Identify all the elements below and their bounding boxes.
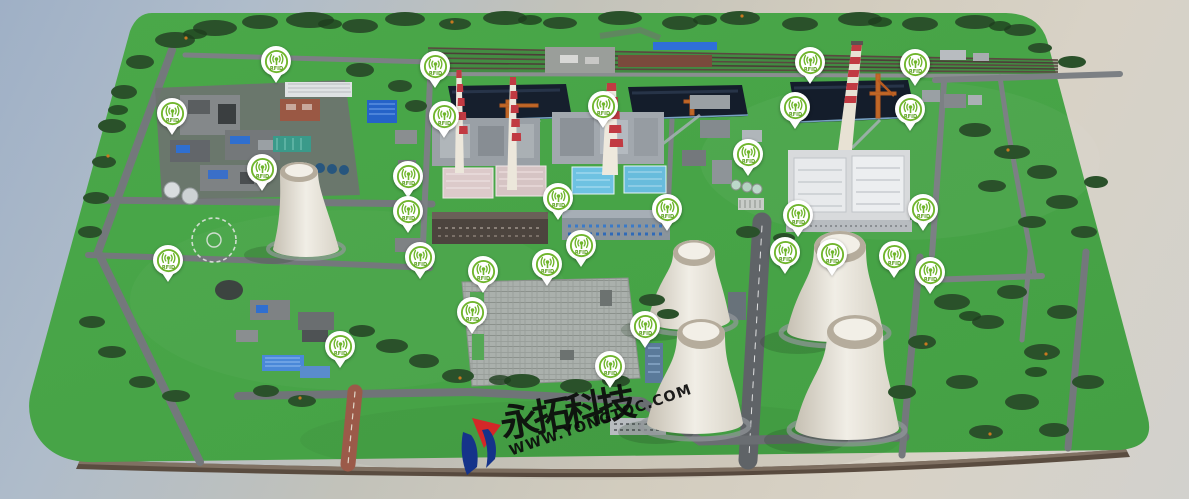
rfid-marker-label: RFID	[540, 269, 553, 275]
rfid-marker-label: RFID	[908, 69, 921, 75]
rfid-marker-tail	[334, 359, 346, 368]
rfid-marker-label: RFID	[476, 276, 489, 282]
rfid-signal-icon: RFID	[903, 52, 928, 77]
rfid-marker[interactable]: RFID	[393, 161, 423, 200]
rfid-marker-label: RFID	[788, 112, 801, 118]
rfid-marker-label: RFID	[916, 214, 929, 220]
rfid-marker-label: RFID	[465, 317, 478, 323]
rfid-marker[interactable]: RFID	[325, 331, 355, 370]
rfid-signal-icon: RFID	[328, 334, 353, 359]
rfid-marker-bubble: RFID	[532, 249, 562, 279]
rfid-signal-icon: RFID	[160, 101, 185, 126]
rfid-signal-icon: RFID	[546, 186, 571, 211]
rfid-marker[interactable]: RFID	[783, 200, 813, 239]
rfid-marker[interactable]: RFID	[261, 46, 291, 85]
rfid-marker-tail	[661, 222, 673, 231]
rfid-marker-bubble: RFID	[915, 257, 945, 287]
rfid-marker-tail	[162, 273, 174, 282]
rfid-signal-icon: RFID	[882, 244, 907, 269]
rfid-marker-tail	[826, 267, 838, 276]
rfid-marker-bubble: RFID	[261, 46, 291, 76]
rfid-marker-bubble: RFID	[457, 297, 487, 327]
rfid-marker[interactable]: RFID	[795, 47, 825, 86]
rfid-marker-tail	[414, 270, 426, 279]
rfid-signal-icon: RFID	[773, 240, 798, 265]
rfid-marker-bubble: RFID	[733, 139, 763, 169]
rfid-signal-icon: RFID	[432, 104, 457, 129]
rfid-marker-label: RFID	[551, 203, 564, 209]
rfid-marker-tail	[477, 284, 489, 293]
rfid-marker-tail	[742, 167, 754, 176]
rfid-signal-icon: RFID	[783, 95, 808, 120]
rfid-marker-tail	[402, 224, 414, 233]
rfid-marker-bubble: RFID	[247, 154, 277, 184]
rfid-marker-tail	[256, 182, 268, 191]
rfid-marker-label: RFID	[413, 262, 426, 268]
rfid-marker[interactable]: RFID	[468, 256, 498, 295]
rfid-marker[interactable]: RFID	[900, 49, 930, 88]
rfid-marker-label: RFID	[401, 216, 414, 222]
rfid-marker-bubble: RFID	[543, 183, 573, 213]
rfid-marker[interactable]: RFID	[630, 311, 660, 350]
rfid-marker-bubble: RFID	[780, 92, 810, 122]
rfid-marker[interactable]: RFID	[733, 139, 763, 178]
rfid-marker-bubble: RFID	[895, 94, 925, 124]
rfid-marker[interactable]: RFID	[588, 91, 618, 130]
rfid-marker-label: RFID	[161, 265, 174, 271]
rfid-marker-tail	[639, 339, 651, 348]
rfid-marker[interactable]: RFID	[652, 194, 682, 233]
rfid-marker[interactable]: RFID	[895, 94, 925, 133]
rfid-signal-icon: RFID	[569, 233, 594, 258]
rfid-signal-icon: RFID	[156, 248, 181, 273]
rfid-marker-tail	[597, 119, 609, 128]
rfid-marker-bubble: RFID	[468, 256, 498, 286]
rfid-marker-tail	[792, 228, 804, 237]
rfid-marker[interactable]: RFID	[595, 351, 625, 390]
rfid-marker-label: RFID	[778, 257, 791, 263]
rfid-marker[interactable]: RFID	[429, 101, 459, 140]
rfid-marker-bubble: RFID	[393, 196, 423, 226]
rfid-marker[interactable]: RFID	[879, 241, 909, 280]
rfid-signal-icon: RFID	[911, 197, 936, 222]
rfid-marker-bubble: RFID	[783, 200, 813, 230]
rfid-marker[interactable]: RFID	[405, 242, 435, 281]
rfid-marker-bubble: RFID	[817, 239, 847, 269]
rfid-marker-tail	[166, 126, 178, 135]
rfid-marker[interactable]: RFID	[157, 98, 187, 137]
rfid-marker-tail	[789, 120, 801, 129]
rfid-signal-icon: RFID	[598, 354, 623, 379]
rfid-marker-bubble: RFID	[795, 47, 825, 77]
rfid-marker-label: RFID	[255, 174, 268, 180]
rfid-marker[interactable]: RFID	[908, 194, 938, 233]
rfid-signal-icon: RFID	[918, 260, 943, 285]
rfid-marker-label: RFID	[428, 71, 441, 77]
rfid-marker-bubble: RFID	[588, 91, 618, 121]
rfid-marker-bubble: RFID	[900, 49, 930, 79]
rfid-marker-bubble: RFID	[630, 311, 660, 341]
rfid-marker-bubble: RFID	[566, 230, 596, 260]
rfid-signal-icon: RFID	[396, 199, 421, 224]
rfid-marker-tail	[917, 222, 929, 231]
rfid-marker-tail	[429, 79, 441, 88]
rfid-marker[interactable]: RFID	[915, 257, 945, 296]
rfid-signal-icon: RFID	[471, 259, 496, 284]
rfid-marker[interactable]: RFID	[543, 183, 573, 222]
rfid-marker-label: RFID	[401, 181, 414, 187]
rfid-marker-label: RFID	[269, 66, 282, 72]
rfid-marker-bubble: RFID	[405, 242, 435, 272]
rfid-marker-label: RFID	[603, 371, 616, 377]
rfid-marker-tail	[604, 379, 616, 388]
rfid-marker-label: RFID	[437, 121, 450, 127]
rfid-marker-bubble: RFID	[908, 194, 938, 224]
rfid-marker-bubble: RFID	[420, 51, 450, 81]
rfid-signal-icon: RFID	[798, 50, 823, 75]
rfid-marker-tail	[904, 122, 916, 131]
rfid-signal-icon: RFID	[633, 314, 658, 339]
rfid-marker-bubble: RFID	[429, 101, 459, 131]
rfid-marker[interactable]: RFID	[817, 239, 847, 278]
rfid-marker-label: RFID	[791, 220, 804, 226]
rfid-marker-bubble: RFID	[393, 161, 423, 191]
rfid-marker[interactable]: RFID	[420, 51, 450, 90]
rfid-markers-layer: RFID RFID	[0, 0, 1189, 499]
rfid-marker-bubble: RFID	[153, 245, 183, 275]
rfid-marker[interactable]: RFID	[532, 249, 562, 288]
rfid-marker[interactable]: RFID	[566, 230, 596, 269]
rfid-marker-tail	[438, 129, 450, 138]
rfid-marker[interactable]: RFID	[393, 196, 423, 235]
rfid-marker-label: RFID	[596, 111, 609, 117]
rfid-marker-label: RFID	[165, 118, 178, 124]
rfid-marker-tail	[779, 265, 791, 274]
rfid-signal-icon: RFID	[591, 94, 616, 119]
rfid-signal-icon: RFID	[655, 197, 680, 222]
rfid-signal-icon: RFID	[535, 252, 560, 277]
rfid-marker-label: RFID	[887, 261, 900, 267]
plant-3d-map: 永拓科技 WWW.YONGTOC.COM RFID	[0, 0, 1189, 499]
rfid-marker-tail	[270, 74, 282, 83]
rfid-marker-bubble: RFID	[157, 98, 187, 128]
rfid-marker-tail	[552, 211, 564, 220]
rfid-marker-bubble: RFID	[879, 241, 909, 271]
rfid-marker-tail	[804, 75, 816, 84]
rfid-marker-bubble: RFID	[652, 194, 682, 224]
rfid-signal-icon: RFID	[264, 49, 289, 74]
rfid-marker-label: RFID	[660, 214, 673, 220]
rfid-marker-tail	[924, 285, 936, 294]
rfid-marker-tail	[541, 277, 553, 286]
rfid-signal-icon: RFID	[786, 203, 811, 228]
rfid-signal-icon: RFID	[736, 142, 761, 167]
rfid-marker-label: RFID	[825, 259, 838, 265]
rfid-marker-bubble: RFID	[595, 351, 625, 381]
rfid-marker[interactable]: RFID	[780, 92, 810, 131]
rfid-marker-tail	[909, 77, 921, 86]
rfid-marker-label: RFID	[803, 67, 816, 73]
rfid-marker-bubble: RFID	[325, 331, 355, 361]
rfid-marker-bubble: RFID	[770, 237, 800, 267]
rfid-marker-label: RFID	[923, 277, 936, 283]
rfid-marker[interactable]: RFID	[457, 297, 487, 336]
rfid-signal-icon: RFID	[423, 54, 448, 79]
rfid-marker[interactable]: RFID	[153, 245, 183, 284]
rfid-signal-icon: RFID	[820, 242, 845, 267]
rfid-signal-icon: RFID	[898, 97, 923, 122]
rfid-signal-icon: RFID	[460, 300, 485, 325]
rfid-marker-label: RFID	[903, 114, 916, 120]
rfid-signal-icon: RFID	[408, 245, 433, 270]
rfid-signal-icon: RFID	[396, 164, 421, 189]
rfid-marker-label: RFID	[333, 351, 346, 357]
rfid-signal-icon: RFID	[250, 157, 275, 182]
rfid-marker[interactable]: RFID	[770, 237, 800, 276]
rfid-marker-label: RFID	[741, 159, 754, 165]
rfid-marker[interactable]: RFID	[247, 154, 277, 193]
rfid-marker-label: RFID	[638, 331, 651, 337]
rfid-marker-tail	[575, 258, 587, 267]
rfid-marker-tail	[466, 325, 478, 334]
rfid-marker-label: RFID	[574, 250, 587, 256]
rfid-marker-tail	[888, 269, 900, 278]
